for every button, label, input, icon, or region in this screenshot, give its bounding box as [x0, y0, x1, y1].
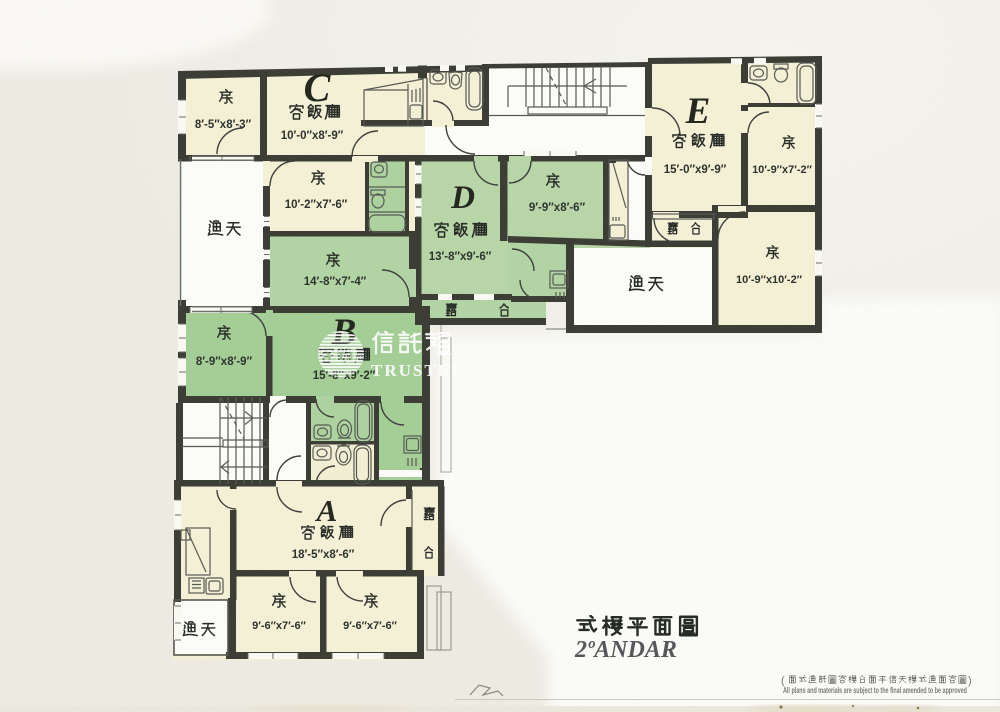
svg-text:A: A [315, 493, 338, 528]
svg-text:15′-0″x9′-9″: 15′-0″x9′-9″ [664, 164, 727, 176]
svg-text:8′-5″x8′-3″: 8′-5″x8′-3″ [195, 119, 252, 131]
svg-text:10′-9″x7′-2″: 10′-9″x7′-2″ [752, 164, 813, 176]
svg-text:18′-5″x8′-6″: 18′-5″x8′-6″ [292, 549, 355, 561]
svg-text:D: D [450, 180, 475, 216]
svg-text:9′-6″x7′-6″: 9′-6″x7′-6″ [343, 620, 397, 632]
svg-text:10′-9″x10′-2″: 10′-9″x10′-2″ [736, 274, 803, 286]
svg-text:): ) [968, 675, 972, 687]
svg-text:E: E [685, 91, 711, 132]
svg-text:TRUSTEE: TRUSTEE [371, 361, 464, 380]
svg-text:9′-9″x8′-6″: 9′-9″x8′-6″ [529, 202, 586, 214]
svg-text:9′-6″x7′-6″: 9′-6″x7′-6″ [252, 620, 306, 632]
svg-text:14′-8″x7′-4″: 14′-8″x7′-4″ [304, 276, 367, 288]
svg-text:2ºANDAR: 2ºANDAR [574, 637, 677, 663]
svg-text:All plans and materials are su: All plans and materials are subject to t… [783, 686, 967, 695]
svg-text:10′-0″x8′-9″: 10′-0″x8′-9″ [281, 130, 344, 142]
svg-text:A.T.I.: A.T.I. [323, 349, 358, 363]
svg-text:10′-2″x7′-6″: 10′-2″x7′-6″ [285, 199, 348, 211]
svg-text:8′-9″x8′-9″: 8′-9″x8′-9″ [196, 356, 253, 368]
svg-text:13′-8″x9′-6″: 13′-8″x9′-6″ [429, 251, 492, 263]
svg-text:C: C [304, 65, 332, 110]
